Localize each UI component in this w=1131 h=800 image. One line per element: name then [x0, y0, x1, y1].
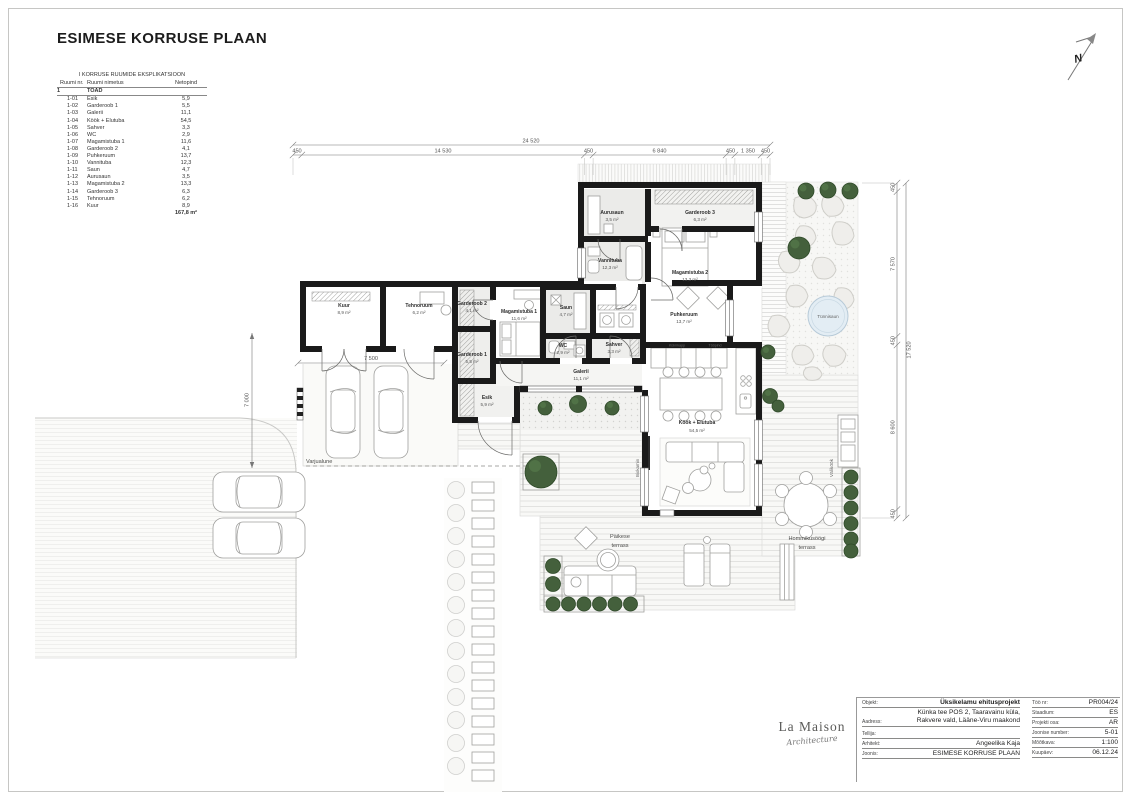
carport-car	[326, 366, 360, 458]
outdoor-kitchen-label: Väliköök	[829, 458, 835, 477]
svg-text:1 350: 1 350	[741, 149, 755, 155]
svg-text:5,9 m²: 5,9 m²	[480, 402, 493, 407]
field-joonis: Joonis: ESIMESE KORRUSE PLAAN	[862, 750, 1020, 759]
svg-text:terrass: terrass	[611, 543, 628, 549]
window	[726, 300, 734, 336]
rock-garden	[762, 182, 858, 380]
room-label-galerii: Galerii	[573, 369, 589, 375]
svg-text:4,7 m²: 4,7 m²	[559, 312, 572, 317]
field-objekt: Objekt: Üksikelamu ehitusprojekt	[862, 699, 1020, 708]
carport-post-marker	[297, 388, 303, 420]
room-label-aurusaun: Aurusaun	[600, 210, 623, 216]
north-arrow: N	[1068, 33, 1096, 80]
window	[755, 212, 763, 242]
room-label-saun: Saun	[560, 305, 572, 311]
room-label-magamistuba2: Magamistuba 2	[672, 270, 708, 276]
parked-car	[213, 518, 305, 558]
room-label-garderoob1: Garderoob 1	[457, 352, 487, 358]
worktop-label: Tööpind	[709, 344, 722, 348]
dim-top-total: 24 520	[522, 139, 539, 145]
svg-text:5,5 m²: 5,5 m²	[465, 359, 478, 364]
title-block-meta: Töö nr:PR004/24 Staadium:ES Projekti osa…	[1024, 697, 1120, 782]
bio-fireplace-label: Biokamin	[635, 458, 640, 477]
room-label-garderoob2: Garderoob 2	[457, 301, 487, 307]
outdoor-sofa	[564, 566, 636, 596]
tree	[772, 400, 784, 412]
tree	[761, 345, 775, 359]
barrel-sauna-label: Tünnisaun	[817, 314, 839, 319]
svg-text:450: 450	[726, 149, 735, 155]
dim-carport: 7 500	[364, 356, 378, 362]
svg-text:13,3 m²: 13,3 m²	[682, 277, 698, 282]
svg-text:450: 450	[761, 149, 770, 155]
meta-kuupaev: Kuupäev:06.12.24	[1032, 749, 1118, 758]
sofa-group	[660, 438, 750, 506]
garden-path	[444, 478, 502, 792]
svg-text:3,5 m²: 3,5 m²	[605, 217, 618, 222]
svg-text:terrass: terrass	[798, 545, 815, 551]
galerii-window-band	[520, 386, 642, 392]
room-label-sahver: Sahver	[606, 342, 623, 348]
dim-left: 7 000	[245, 393, 251, 407]
terrace-steps	[780, 544, 794, 600]
svg-text:3,3 m²: 3,3 m²	[607, 349, 620, 354]
room-label-esik: Esik	[482, 395, 493, 401]
room-label-garderoob3: Garderoob 3	[685, 210, 715, 216]
company-logo: La Maison Architecture	[768, 697, 856, 782]
breakfast-terrace-label: Hommikusöögi	[789, 536, 826, 542]
svg-text:6 840: 6 840	[653, 149, 667, 155]
svg-text:6,3 m²: 6,3 m²	[693, 217, 706, 222]
svg-text:4,1 m²: 4,1 m²	[465, 308, 478, 313]
tree	[820, 182, 836, 198]
svg-text:54,5 m²: 54,5 m²	[689, 428, 705, 433]
svg-text:14 530: 14 530	[434, 149, 451, 155]
svg-text:11,1 m²: 11,1 m²	[573, 376, 589, 381]
window	[755, 464, 763, 506]
svg-text:450: 450	[891, 183, 897, 192]
window	[641, 468, 649, 506]
parked-car	[213, 472, 305, 512]
field-tellija: Tellija:	[862, 728, 1020, 739]
sliding-door-gap	[660, 510, 674, 516]
svg-text:450: 450	[891, 509, 897, 518]
svg-text:11,6 m²: 11,6 m²	[511, 316, 527, 321]
svg-text:450: 450	[584, 149, 593, 155]
bed	[500, 322, 540, 356]
title-block: La Maison Architecture Objekt: Üksikelam…	[768, 697, 1120, 782]
field-arhitekt: Arhitekt: Angeelika Kaja	[862, 740, 1020, 749]
svg-text:7 570: 7 570	[891, 257, 897, 271]
window	[755, 420, 763, 460]
north-eave	[578, 164, 770, 182]
carport-car	[374, 366, 408, 458]
window	[641, 396, 649, 432]
tree	[798, 183, 814, 199]
floor-plan: Aurusaun 3,5 m² Garderoob 3 6,3 m² Vanni…	[0, 0, 1131, 800]
room-label-kook-elutuba: Köök + Elutuba	[679, 420, 716, 426]
svg-text:450: 450	[891, 336, 897, 345]
svg-text:13,7 m²: 13,7 m²	[676, 319, 692, 324]
svg-text:6,2 m²: 6,2 m²	[412, 310, 425, 315]
tree	[788, 237, 810, 259]
tree	[605, 401, 619, 415]
outdoor-kitchen	[838, 415, 858, 467]
drawing-sheet: ESIMESE KORRUSE PLAAN I KORRUSE RUUMIDE …	[0, 0, 1131, 800]
meta-mootkava: Mõõtkava:1:100	[1032, 739, 1118, 748]
carport-label: Varjualune	[306, 459, 332, 465]
meta-staadium: Staadium:ES	[1032, 709, 1118, 718]
tree	[842, 183, 858, 199]
room-label-wc: WC	[559, 343, 568, 349]
room-label-kuur: Kuur	[338, 303, 350, 309]
meta-toonr: Töö nr:PR004/24	[1032, 699, 1118, 708]
room-label-magamistuba1: Magamistuba 1	[501, 309, 537, 315]
title-block-fields: Objekt: Üksikelamu ehitusprojekt Aadress…	[856, 697, 1024, 782]
north-letter: N	[1073, 52, 1085, 66]
window	[578, 248, 586, 278]
tree	[538, 401, 552, 415]
field-aadress: Aadress: Künka tee POS 2, Taaravainu kül…	[862, 709, 1020, 727]
entrance-porch	[452, 423, 520, 449]
fridge-label: Külmkapp	[669, 344, 685, 348]
meta-projekti-osa: Projekti osa:AR	[1032, 719, 1118, 728]
meta-joonise-number: Joonise number:5-01	[1032, 729, 1118, 738]
dim-right-total: 17 520	[907, 341, 913, 358]
svg-text:2,9 m²: 2,9 m²	[556, 350, 569, 355]
svg-text:8,9 m²: 8,9 m²	[337, 310, 350, 315]
tree	[570, 396, 587, 413]
svg-text:8 600: 8 600	[891, 420, 897, 434]
room-label-puhkeruum: Puhkeruum	[670, 312, 698, 318]
room-label-vannituba: Vannituba	[598, 258, 622, 264]
room-label-tehnoruum: Tehnoruum	[405, 303, 433, 309]
sun-terrace-label: Päikese	[610, 534, 630, 540]
svg-text:12,3 m²: 12,3 m²	[602, 265, 618, 270]
svg-text:450: 450	[292, 149, 301, 155]
